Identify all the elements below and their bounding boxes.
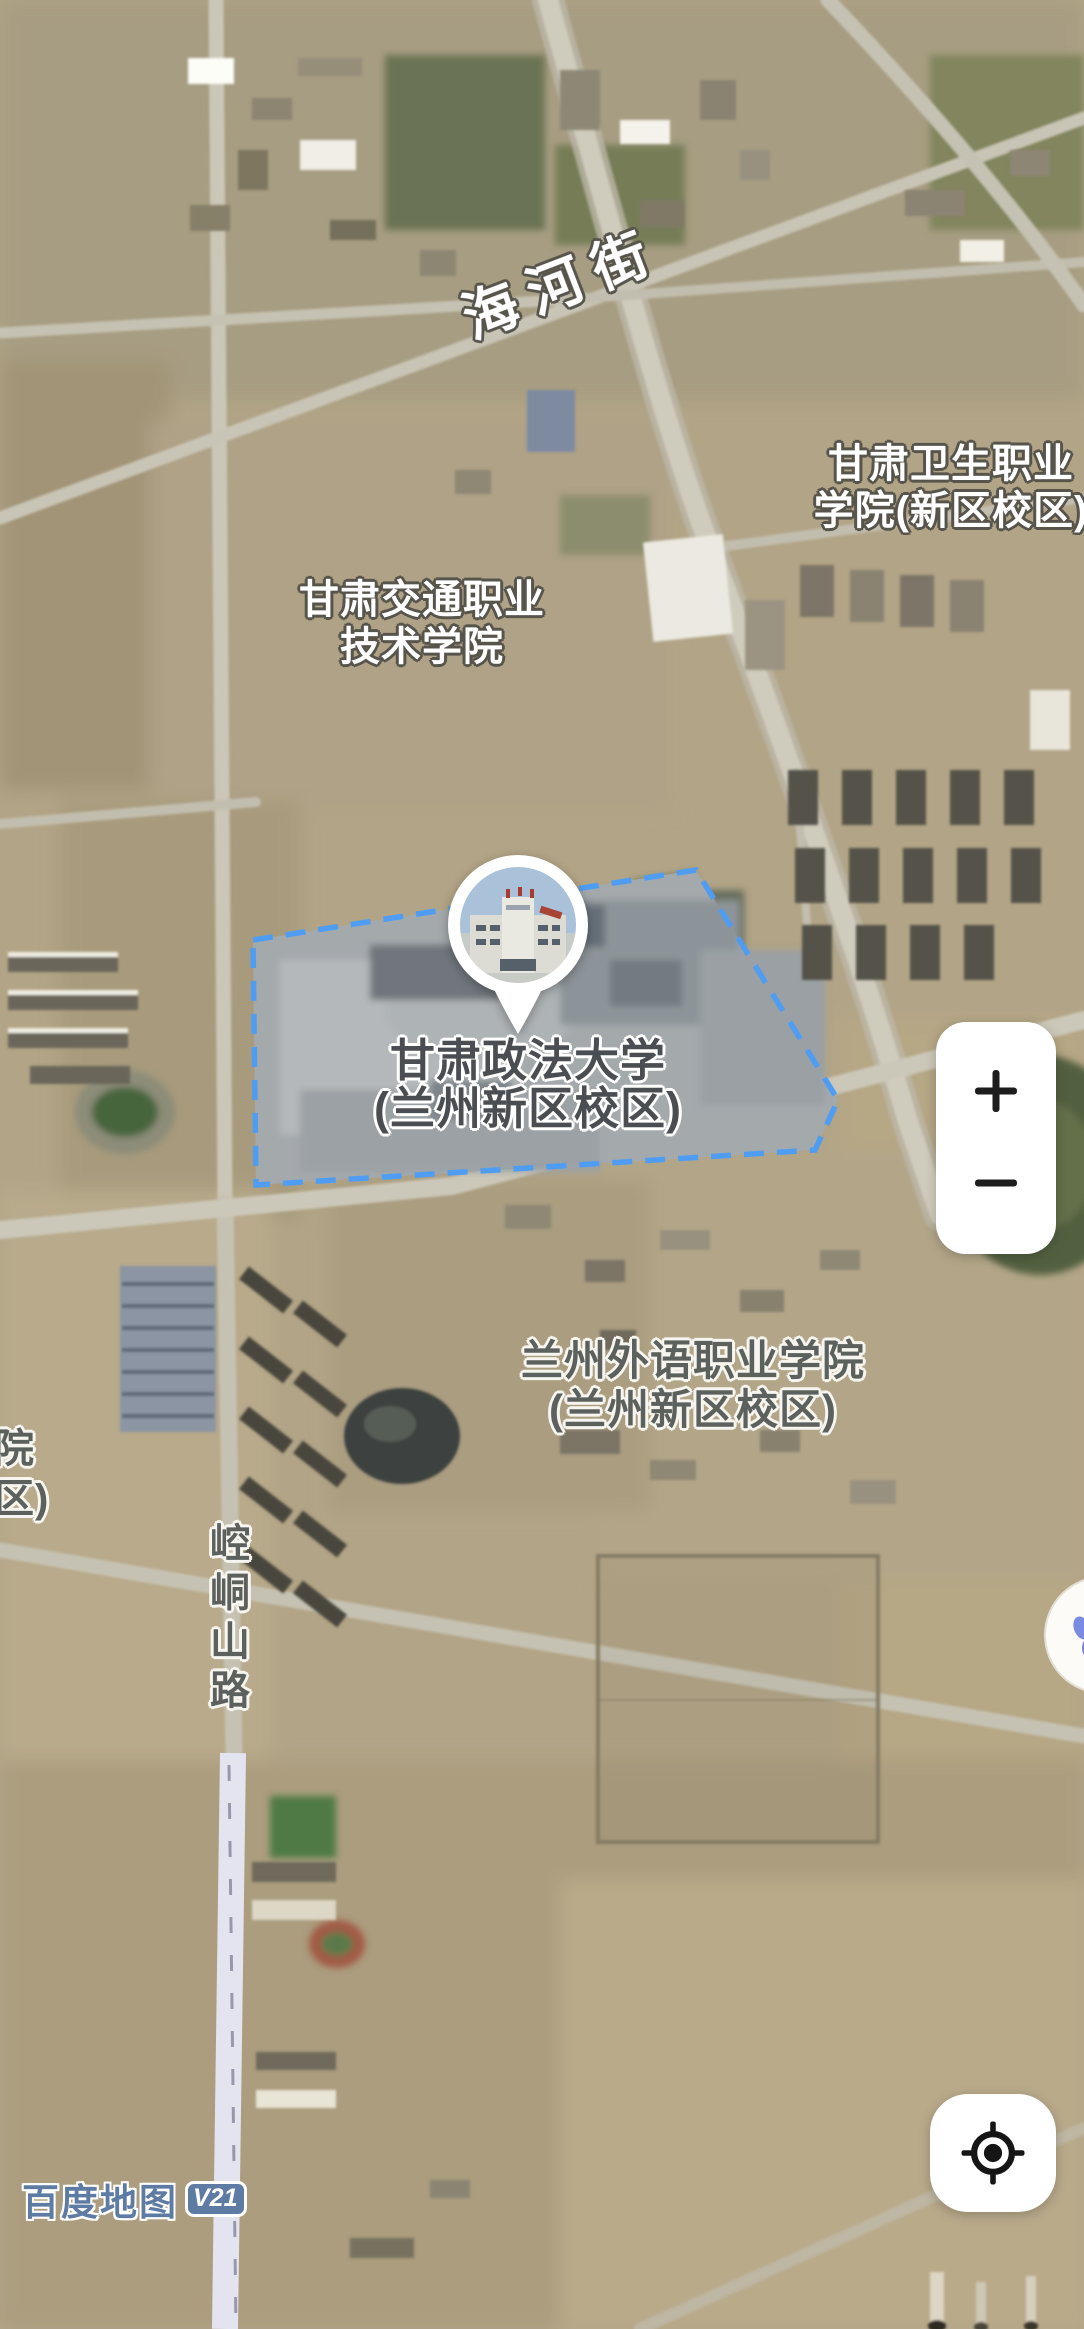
watermark-version-badge: V21 bbox=[185, 2181, 247, 2217]
road-label-kongtongshan-road: 崆峒山路 bbox=[204, 1522, 248, 1718]
poi-label-line: 甘肃卫生职业 bbox=[808, 441, 1084, 488]
road-label-text: 崆峒山路 bbox=[204, 1522, 248, 1718]
minus-icon bbox=[975, 1180, 1017, 1187]
location-pin-marker[interactable] bbox=[440, 853, 596, 1039]
poi-label-line: 甘肃交通职业 bbox=[282, 577, 562, 624]
poi-label-clipped-left-edge: 院 区) bbox=[0, 1424, 56, 1524]
map-canvas[interactable]: 海河街 甘肃卫生职业 学院(新区校区) 甘肃交通职业 技术学院 甘肃政法大学 (… bbox=[0, 0, 1084, 2329]
zoom-control-panel bbox=[936, 1022, 1056, 1254]
poi-label-line: (兰州新区校区) bbox=[505, 1385, 881, 1434]
poi-label-line: 甘肃政法大学 bbox=[340, 1037, 716, 1085]
poi-label-line: 区) bbox=[0, 1474, 56, 1524]
poi-label-line: 学院(新区校区) bbox=[808, 488, 1084, 535]
zoom-in-button[interactable] bbox=[936, 1022, 1056, 1138]
watermark-brand: 百度地图 bbox=[22, 2172, 178, 2226]
poi-label-line: (兰州新区校区) bbox=[340, 1085, 716, 1133]
poi-label-line: 院 bbox=[0, 1424, 56, 1474]
map-watermark: 百度地图 V21 bbox=[22, 2172, 247, 2226]
poi-label-line: 兰州外语职业学院 bbox=[505, 1336, 881, 1385]
paw-icon bbox=[1067, 1599, 1084, 1671]
poi-label-line: 技术学院 bbox=[282, 624, 562, 671]
satellite-imagery bbox=[0, 0, 1084, 2329]
zoom-out-button[interactable] bbox=[936, 1138, 1056, 1254]
poi-label-gansu-jiaotong-college[interactable]: 甘肃交通职业 技术学院 bbox=[282, 577, 562, 671]
poi-label-gansu-zhengfa-university[interactable]: 甘肃政法大学 (兰州新区校区) bbox=[340, 1037, 716, 1133]
plus-icon bbox=[993, 1070, 1000, 1112]
poi-label-lanzhou-waiyu-college[interactable]: 兰州外语职业学院 (兰州新区校区) bbox=[505, 1336, 881, 1434]
poi-label-gansu-health-college[interactable]: 甘肃卫生职业 学院(新区校区) bbox=[808, 441, 1084, 535]
locate-me-button[interactable] bbox=[930, 2094, 1056, 2212]
target-crosshair-icon bbox=[958, 2118, 1028, 2188]
